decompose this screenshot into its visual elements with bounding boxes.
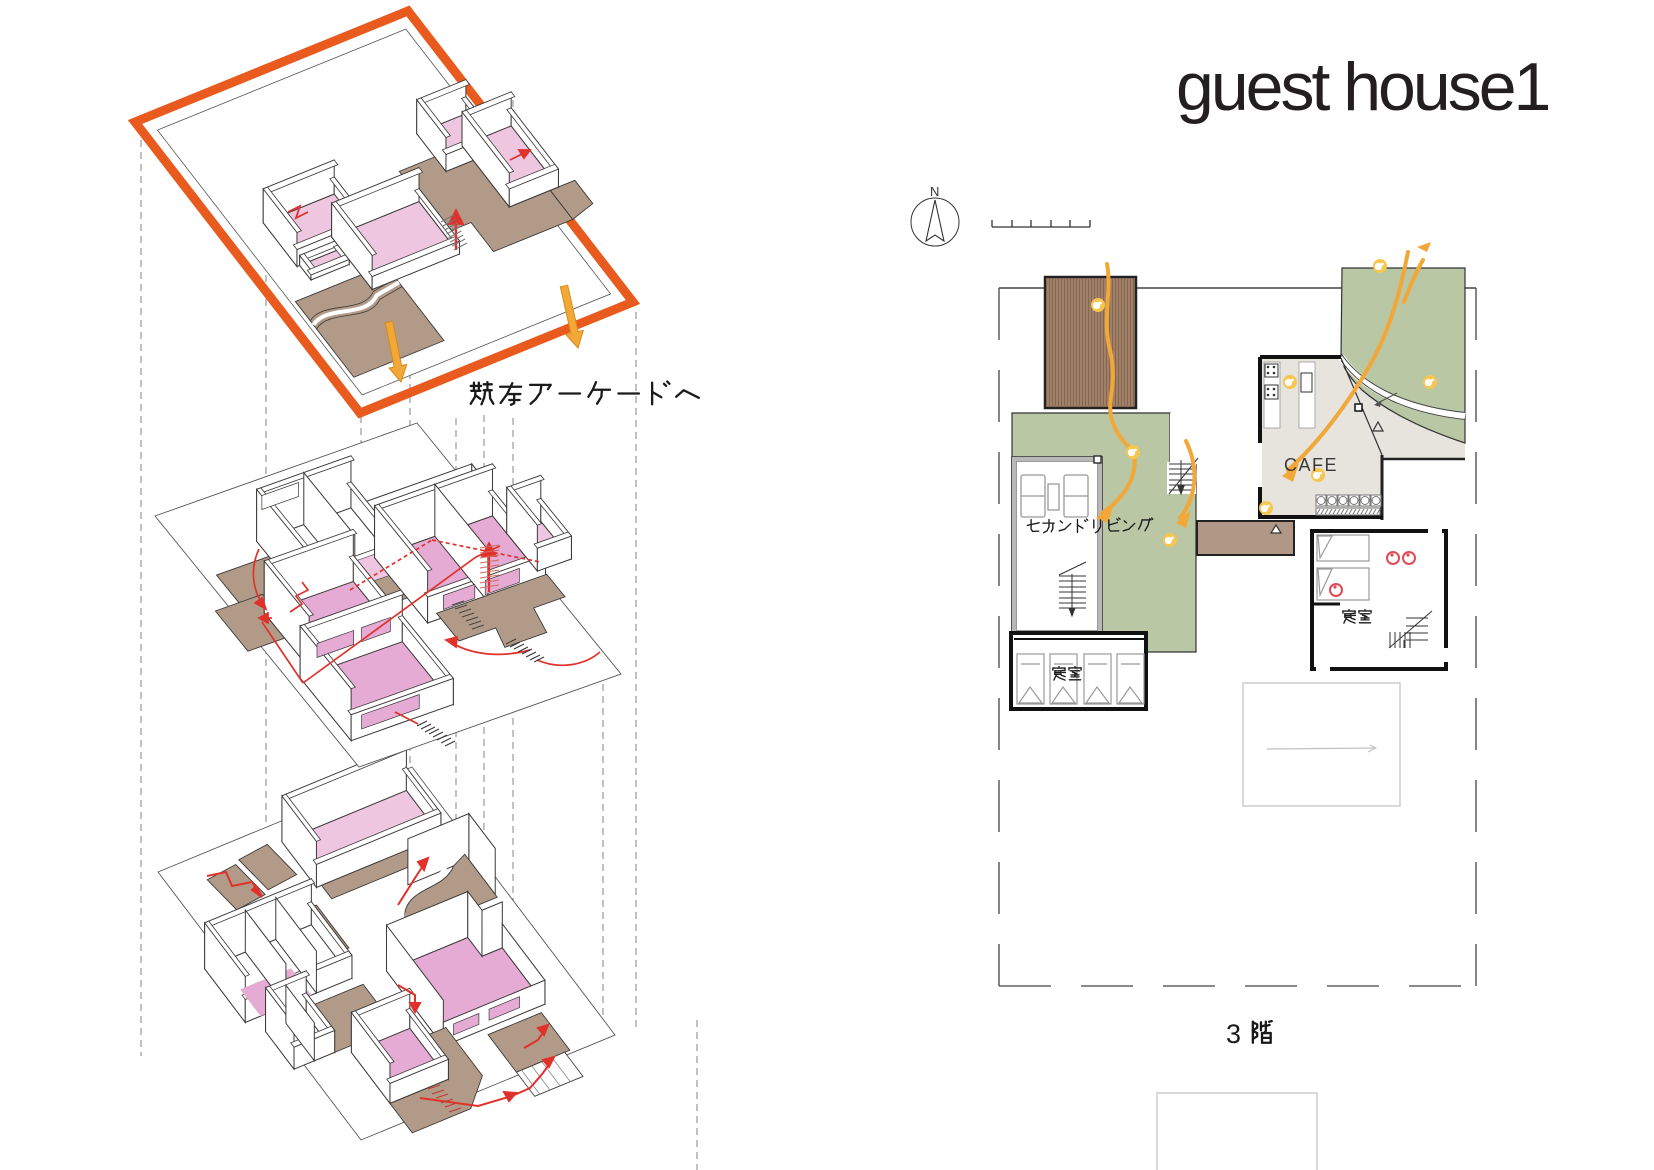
svg-text:CAFE: CAFE [1284, 455, 1338, 475]
svg-text:3: 3 [1226, 1019, 1241, 1049]
svg-text:guest house1: guest house1 [1176, 49, 1549, 125]
svg-text:N: N [930, 184, 939, 199]
